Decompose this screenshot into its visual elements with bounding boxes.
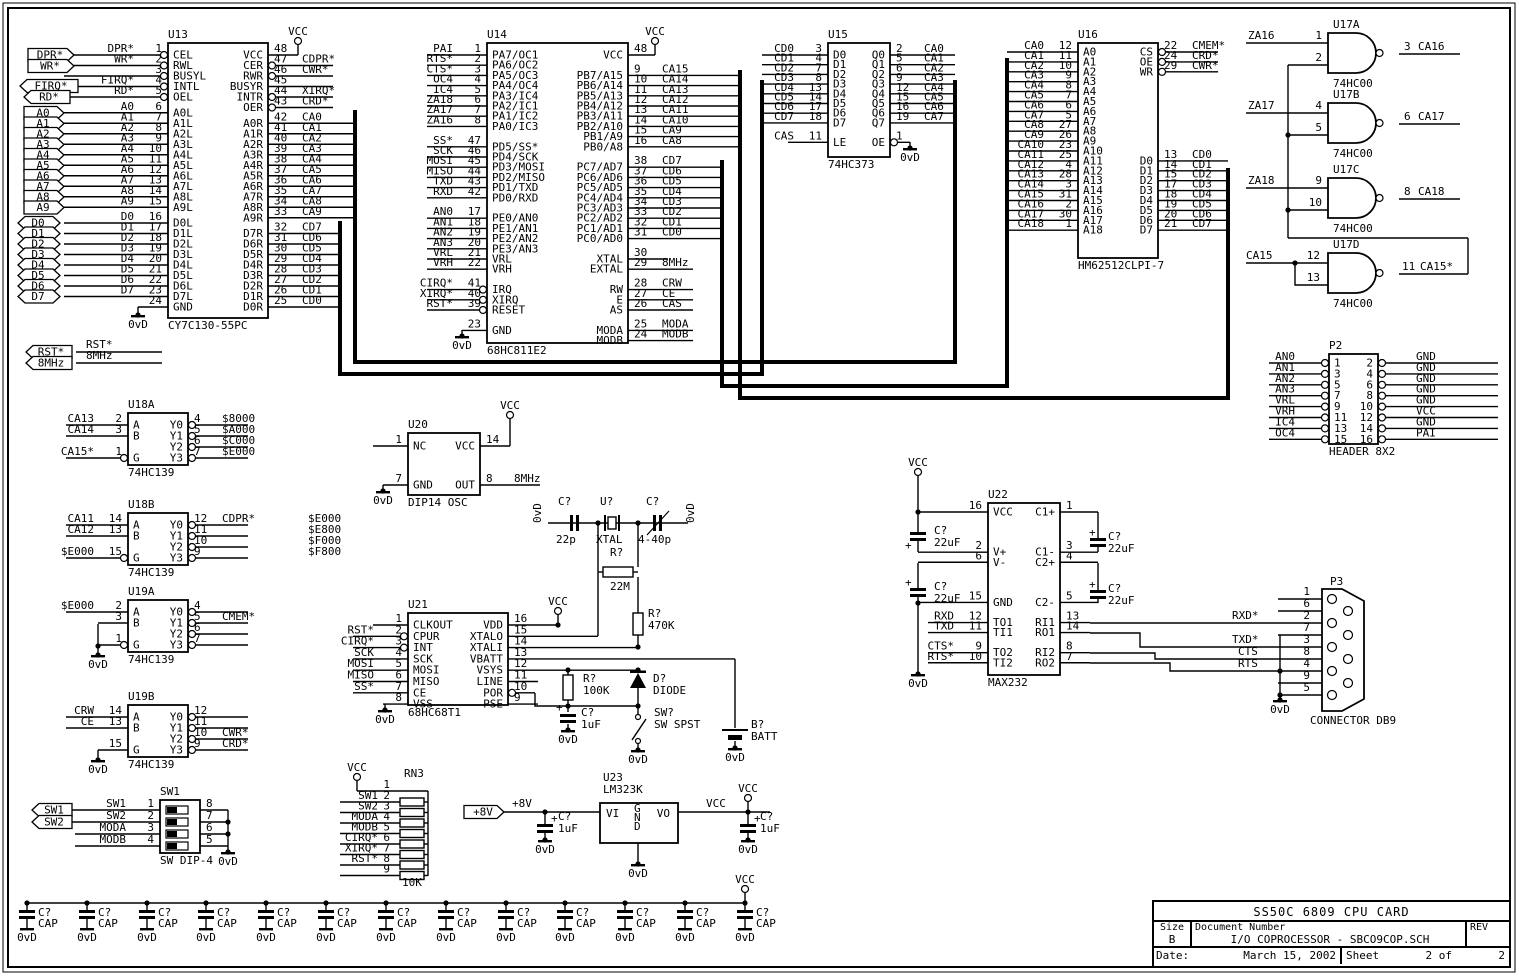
vcc-label: VCC (645, 25, 665, 38)
net-label: SW SPST (654, 718, 701, 731)
pin-name: B (133, 430, 140, 443)
diode-anode (630, 673, 646, 688)
ground-label: 0vD (375, 713, 395, 726)
cap-value: CAP (158, 917, 178, 930)
pin-name: D7 (833, 116, 846, 129)
ground-label: 0vD (436, 931, 456, 944)
pin-name: GND (492, 324, 512, 337)
vcc-label: VCC (908, 456, 928, 469)
pin-number: 8 (486, 472, 493, 485)
ground-dot (542, 837, 547, 842)
pin-name: Y3 (170, 552, 183, 565)
ic-ref: U21 (408, 598, 428, 611)
net-label: CA8 (662, 134, 682, 147)
pin-name: GND (993, 596, 1013, 609)
net-label: + (551, 812, 558, 825)
ic-ref: U22 (988, 488, 1008, 501)
inverted-pin-bubble (1322, 381, 1329, 388)
pin-number: 8 (474, 113, 481, 126)
capacitor-plate (576, 515, 579, 531)
vcc-circle (507, 412, 514, 419)
pin-number: 1 (1065, 217, 1072, 230)
ground-dot (1277, 697, 1282, 702)
capacitor-plate (79, 910, 95, 913)
bus-line (720, 160, 724, 388)
capacitor-plate (910, 538, 926, 541)
vcc-label: VCC (548, 595, 568, 608)
port-label: +8V (473, 806, 493, 819)
pin-number: 15 (149, 194, 162, 207)
inverted-pin-bubble (1379, 403, 1386, 410)
capacitor-plate (258, 916, 274, 919)
pin-number: 8 (395, 691, 402, 704)
capacitor-plate (677, 910, 693, 913)
ground-label: 0vD (376, 931, 396, 944)
vcc-circle (652, 38, 659, 45)
pin-name: NC (413, 440, 426, 453)
nand-gate-U17C (1328, 178, 1376, 218)
cap-value: CAP (756, 917, 776, 930)
net-label: CRD* (302, 95, 329, 108)
pin-number: 6 (975, 549, 982, 562)
pin-name: D0R (243, 301, 263, 314)
bus-line (1005, 58, 1009, 386)
pin-name: VRH (492, 263, 512, 276)
inverted-pin-bubble (1322, 370, 1329, 377)
ground-dot (135, 312, 140, 317)
net-label: 22uF (934, 536, 961, 549)
bus-line (738, 70, 742, 400)
ground-dot (95, 652, 100, 657)
capacitor-plate (570, 515, 573, 531)
ic-part: 74HC373 (828, 158, 874, 171)
capacitor-plate (438, 910, 454, 913)
bus-line (720, 384, 1009, 388)
ground-dot (380, 488, 385, 493)
ic-part: 74HC139 (128, 466, 174, 479)
net-label: CWR* (1192, 59, 1219, 72)
nand-gate-U17A (1328, 33, 1376, 73)
pin-number: 7 (194, 445, 201, 458)
capacitor-plate (910, 594, 926, 597)
nand-gate-U17D (1328, 253, 1376, 293)
ground-label: 0vD (88, 763, 108, 776)
ground-label: 0vD (1270, 703, 1290, 716)
net-label: 10 (1309, 196, 1322, 209)
pin-name: C2- (1035, 596, 1055, 609)
cap-value: CAP (576, 917, 596, 930)
junction-dot (542, 809, 547, 814)
junction-dot (225, 831, 230, 836)
vcc-label: VCC (735, 873, 755, 886)
port-label: SW2 (44, 816, 64, 829)
capacitor-plate (557, 910, 573, 913)
dip-switch-rocker-on (167, 819, 177, 825)
vcc-label: VCC (500, 399, 520, 412)
capacitor-plate (740, 830, 756, 833)
capacitor-plate (438, 916, 454, 919)
port-label: 8MHz (38, 357, 65, 370)
gate-ref: U17D (1333, 238, 1360, 251)
pin-number: 48 (634, 42, 647, 55)
net-label: 100K (583, 684, 610, 697)
schematic-sheet: U13CY7C130-55PC1DPR*CEL2WR*RWL3BUSYL4FIR… (0, 0, 1519, 976)
title-block-title: SS50C 6809 CPU CARD (1154, 902, 1509, 922)
gate-ref: U17A (1333, 18, 1360, 31)
pin-name: B (133, 530, 140, 543)
net-label: CA15* (61, 445, 94, 458)
net-label: A9 (121, 194, 134, 207)
connector-part: CONNECTOR DB9 (1310, 714, 1396, 727)
schematic-canvas: U13CY7C130-55PC1DPR*CEL2WR*RWL3BUSYL4FIR… (0, 0, 1519, 976)
ic-part: 74HC139 (128, 758, 174, 771)
net-label: 470K (648, 619, 675, 632)
resistor (400, 851, 424, 859)
ground-label: 0vD (900, 151, 920, 164)
ground-label: 0vD (128, 318, 148, 331)
junction-dot (595, 520, 600, 525)
junction-dot (1285, 207, 1290, 212)
net-label: D7 (121, 284, 134, 297)
pin-name: RO1 (1035, 626, 1055, 639)
pin-number: 13 (109, 523, 122, 536)
pin-name: 15 (1334, 433, 1347, 446)
db9-pin (1328, 643, 1337, 652)
pin-number: 21 (1164, 217, 1177, 230)
net-label: SS* (354, 680, 374, 693)
ground-dot (732, 745, 737, 750)
capacitor-plate (617, 916, 633, 919)
capacitor-plate (139, 910, 155, 913)
pin-name: RO2 (1035, 656, 1055, 669)
net-label: CA9 (302, 205, 322, 218)
ic-ref: U19A (128, 585, 155, 598)
junction-dot (565, 703, 570, 708)
junction-dot (1285, 132, 1290, 137)
resistor (400, 798, 424, 806)
pin-name: PB0/A8 (583, 140, 623, 153)
net-label: 11 (1402, 260, 1415, 273)
inverted-pin-bubble (1379, 392, 1386, 399)
ground-label: 0vD (535, 843, 555, 856)
pin-number: 9 (194, 737, 201, 750)
pin-number: 33 (274, 205, 287, 218)
vcc-circle (745, 795, 752, 802)
net-label: RD* (114, 84, 134, 97)
pin-number: 1 (115, 445, 122, 458)
net-label: 8MHz (514, 472, 541, 485)
db9-pin (1328, 595, 1337, 604)
cap-value: CAP (397, 917, 417, 930)
cap-value: CAP (277, 917, 297, 930)
title-block-date: Date: March 15, 2002 (1154, 948, 1342, 964)
ground-dot (225, 849, 230, 854)
ground-label: 0vD (218, 855, 238, 868)
net-label: ZA18 (1248, 174, 1275, 187)
db9-pin (1328, 667, 1337, 676)
resistor (400, 840, 424, 848)
junction-dot (635, 520, 640, 525)
db9-pin (1344, 655, 1353, 664)
pin-number: 1 (115, 632, 122, 645)
inverted-pin-bubble (1379, 370, 1386, 377)
capacitor-plate (79, 916, 95, 919)
net-label: 12 (1307, 249, 1320, 262)
inverted-pin-bubble (1322, 403, 1329, 410)
vcc-circle (354, 774, 361, 781)
net-label: CD0 (302, 294, 322, 307)
pin-number: 9 (194, 545, 201, 558)
capacitor-plate (378, 916, 394, 919)
pin-number: 29 (1164, 59, 1177, 72)
ground-label: 0vD (77, 931, 97, 944)
junction-dot (225, 819, 230, 824)
capacitor-plate (659, 515, 662, 531)
ground-label: 0vD (452, 339, 472, 352)
net-label: CRD* (222, 737, 249, 750)
nand-gate-U17B (1328, 103, 1376, 143)
pin-name: TI2 (993, 656, 1013, 669)
ic-ref: U18A (128, 398, 155, 411)
cap-value: CAP (696, 917, 716, 930)
inverted-pin-bubble (1379, 436, 1386, 443)
inverted-pin-bubble (1379, 381, 1386, 388)
pin-name: RESET (492, 304, 525, 317)
pin-name: OEL (173, 91, 193, 104)
ic-ref: P2 (1329, 339, 1342, 352)
net-label: OC4 (1275, 426, 1295, 439)
pin-number: 18 (809, 110, 822, 123)
net-label: +8V (512, 797, 532, 810)
net-label: DIODE (653, 684, 686, 697)
net-label: $E000 (222, 445, 255, 458)
pin-number: 3 (115, 423, 122, 436)
junction-dot (635, 667, 640, 672)
gate-part: 74HC00 (1333, 297, 1373, 310)
pin-number: 7 (395, 472, 402, 485)
pin-number: 7 (1066, 650, 1073, 663)
pin-number: 29 (634, 256, 647, 269)
net-label: $F800 (308, 545, 341, 558)
net-label: CA16 (1418, 40, 1445, 53)
bus-line (760, 80, 764, 376)
net-label: 0vD (531, 503, 544, 523)
dip-switch-rocker-on (167, 831, 177, 837)
net-label: CA15 (1246, 249, 1273, 262)
ic-ref: SW1 (160, 785, 180, 798)
junction-dot (1277, 668, 1282, 673)
ground-label: 0vD (725, 751, 745, 764)
net-label: CA18 (1418, 185, 1445, 198)
net-label: CA17 (1418, 110, 1445, 123)
ground-label: 0vD (738, 843, 758, 856)
net-label: MODB (662, 328, 689, 341)
net-label: 8MHz (662, 256, 689, 269)
pin-name: B (133, 617, 140, 630)
inverter-bubble (1376, 195, 1383, 202)
net-label: MODB (100, 833, 127, 846)
junction-dot (95, 643, 100, 648)
pin-number: 5 (155, 84, 162, 97)
junction-dot (1277, 692, 1282, 697)
resistor (400, 819, 424, 827)
gate-ref: U17B (1333, 88, 1360, 101)
pin-name: C2+ (1035, 556, 1055, 569)
port-label: D7 (31, 290, 44, 303)
junction-dot (915, 600, 920, 605)
resistor (400, 861, 424, 869)
net-label: 4-40p (638, 533, 671, 546)
ic-ref: U18B (128, 498, 155, 511)
vcc-circle (742, 886, 749, 893)
net-label: ZA17 (1248, 99, 1275, 112)
net-label: VI (606, 807, 619, 820)
ic-part: LM323K (603, 783, 643, 796)
pin-number: 39 (468, 297, 481, 310)
net-label: C? (646, 495, 659, 508)
net-label: 9 (1315, 174, 1322, 187)
net-label: WR* (114, 53, 134, 66)
ground-dot (907, 145, 912, 150)
port-label: A9 (36, 201, 49, 214)
ground-dot (565, 727, 570, 732)
rn-value: 10K (402, 876, 422, 889)
crystal-body (608, 517, 616, 529)
pin-number: 11 (809, 129, 822, 142)
capacitor-plate (1090, 544, 1106, 547)
pin-number: 9 (514, 691, 521, 704)
ground-label: 0vD (558, 733, 578, 746)
db9-pin (1344, 631, 1353, 640)
db9-pin (1328, 619, 1337, 628)
vcc-label: VCC (347, 761, 367, 774)
inverted-pin-bubble (1379, 425, 1386, 432)
inverter-bubble (1376, 270, 1383, 277)
net-label: C? (558, 495, 571, 508)
net-label: D (634, 820, 641, 833)
pin-name: OER (243, 101, 263, 114)
title-block-size: Size B (1154, 922, 1192, 946)
wire (632, 719, 646, 740)
ground-dot (95, 757, 100, 762)
ic-ref: U13 (168, 28, 188, 41)
net-label: + (754, 812, 761, 825)
cap-value: CAP (337, 917, 357, 930)
cap-value: CAP (98, 917, 118, 930)
capacitor-plate (139, 916, 155, 919)
net-label: CD7 (1192, 217, 1212, 230)
net-label: 8 (1404, 185, 1411, 198)
junction-dot (635, 703, 640, 708)
capacitor-plate (498, 910, 514, 913)
switch-contact (636, 739, 641, 744)
net-label: 22uF (1108, 594, 1135, 607)
pin-name: V- (993, 556, 1006, 569)
net-label: RST* (427, 297, 454, 310)
pin-name: G (133, 744, 140, 757)
ic-ref: U16 (1078, 28, 1098, 41)
ground-label: 0vD (496, 931, 516, 944)
cap-value: CAP (517, 917, 537, 930)
pin-number: 10 (969, 650, 982, 663)
bus-line (353, 110, 357, 364)
pin-name: B (133, 722, 140, 735)
ground-dot (635, 861, 640, 866)
pin-name: PSE (483, 698, 503, 711)
net-label: CMEM* (222, 610, 255, 623)
ic-part: SW DIP-4 (160, 854, 213, 867)
pin-name: C1+ (1035, 506, 1055, 519)
pin-number: 4 (1066, 549, 1073, 562)
ground-label: 0vD (316, 931, 336, 944)
bus-line (738, 396, 1230, 400)
net-label: CA14 (68, 423, 95, 436)
pin-number: 19 (896, 110, 909, 123)
capacitor-plate (318, 910, 334, 913)
pin-number: 16 (969, 499, 982, 512)
pin-number: 1 (395, 433, 402, 446)
vcc-circle (555, 608, 562, 615)
ic-ref: U19B (128, 690, 155, 703)
net-label: R? (610, 546, 623, 559)
junction-dot (635, 644, 640, 649)
net-label: RST* (352, 852, 379, 865)
pin-number: 3 (115, 610, 122, 623)
net-label: U? (600, 495, 613, 508)
title-block-sheet: Sheet 2 of 2 (1342, 948, 1509, 964)
ground-label: 0vD (555, 931, 575, 944)
ground-label: 0vD (196, 931, 216, 944)
ground-label: 0vD (628, 753, 648, 766)
ground-dot (745, 837, 750, 842)
connector-ref: P3 (1330, 575, 1343, 588)
pin-name: G (133, 452, 140, 465)
pin-number: 15 (969, 589, 982, 602)
net-label: CA12 (68, 523, 95, 536)
capacitor-plate (1090, 596, 1106, 599)
pin-name: D7 (1140, 224, 1153, 237)
net-label: + (905, 576, 912, 589)
pin-name: OUT (455, 479, 475, 492)
title-block: SS50C 6809 CPU CARD Size B Document Numb… (1152, 900, 1511, 968)
net-label: CAS (774, 129, 794, 142)
net-label: 1uF (760, 822, 780, 835)
net-label: 5 (1303, 681, 1310, 694)
pin-name: TI1 (993, 626, 1013, 639)
ground-label: 0vD (628, 867, 648, 880)
pin-number: 9 (383, 863, 390, 876)
ground-label: 0vD (908, 677, 928, 690)
ic-part: CY7C130-55PC (168, 319, 247, 332)
dip-switch-rocker-on (167, 843, 177, 849)
pin-name: Y3 (170, 744, 183, 757)
net-label: 0vD (684, 503, 697, 523)
pin-name: VSS (413, 698, 433, 711)
pin-number: 13 (109, 715, 122, 728)
inverted-pin-bubble (1322, 392, 1329, 399)
capacitor-plate (198, 910, 214, 913)
bus-line (338, 372, 764, 376)
pin-name: G (133, 552, 140, 565)
pin-number: 16 (634, 134, 647, 147)
gate-ref: U17C (1333, 163, 1360, 176)
net-label: 1 (1315, 29, 1322, 42)
net-label: BATT (751, 730, 778, 743)
title-block-rev: REV (1465, 922, 1509, 946)
capacitor-plate (737, 910, 753, 913)
net-label: 3 (1404, 40, 1411, 53)
pin-number: 14 (486, 433, 500, 446)
